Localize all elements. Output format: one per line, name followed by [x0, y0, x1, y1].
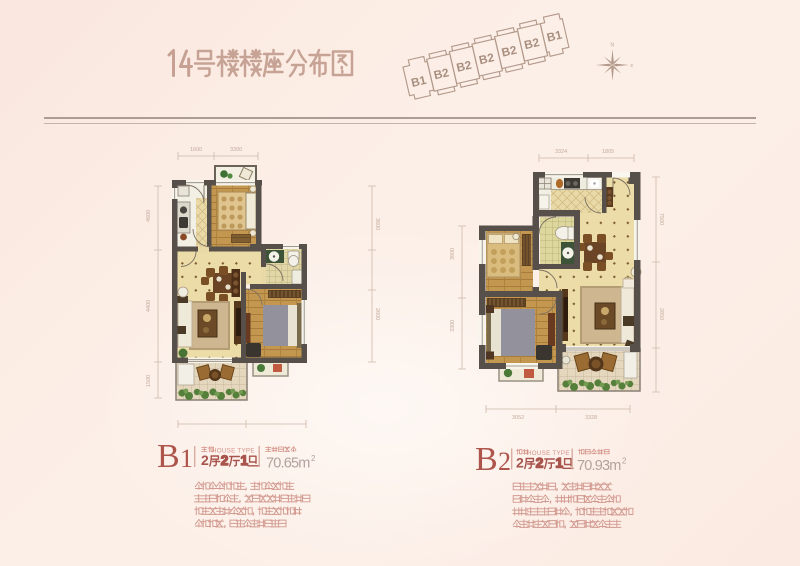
svg-text:HOUSE TYPE: HOUSE TYPE	[212, 447, 255, 454]
svg-text:3300: 3300	[450, 320, 456, 332]
svg-text:2: 2	[622, 457, 627, 466]
svg-text:B1: B1	[545, 27, 563, 44]
svg-text:HOUSE TYPE: HOUSE TYPE	[527, 450, 570, 457]
svg-text:1: 1	[180, 444, 193, 473]
svg-text:1805: 1805	[602, 149, 614, 155]
svg-text:1600: 1600	[190, 147, 202, 153]
svg-text:3600: 3600	[374, 218, 380, 230]
svg-text:E: E	[631, 63, 634, 68]
svg-text:N: N	[611, 43, 615, 49]
svg-text:1: 1	[240, 452, 248, 468]
svg-text:3300: 3300	[230, 147, 242, 153]
svg-text:2: 2	[498, 447, 511, 475]
svg-text:B2: B2	[455, 58, 473, 75]
svg-text:B2: B2	[432, 65, 450, 82]
svg-text:B: B	[475, 441, 498, 475]
svg-text:B2: B2	[478, 50, 496, 67]
svg-text:B: B	[157, 438, 180, 473]
svg-text:7500: 7500	[658, 213, 664, 225]
svg-text:3052: 3052	[512, 415, 524, 421]
svg-text:2: 2	[221, 452, 229, 468]
svg-text:70.65m: 70.65m	[266, 455, 310, 471]
svg-text:3324: 3324	[555, 149, 567, 155]
svg-text:2: 2	[516, 455, 524, 471]
svg-text:B2: B2	[500, 43, 518, 60]
svg-text:B2: B2	[523, 35, 541, 52]
svg-text:4600: 4600	[146, 210, 152, 222]
svg-text:70.93m: 70.93m	[577, 458, 621, 474]
svg-text:B1: B1	[410, 73, 428, 90]
svg-text:2600: 2600	[374, 308, 380, 320]
svg-text:2: 2	[311, 454, 316, 463]
svg-text:2: 2	[201, 452, 209, 468]
svg-text:1500: 1500	[146, 375, 152, 387]
svg-text:2850: 2850	[658, 308, 664, 320]
svg-text:3900: 3900	[450, 248, 456, 260]
svg-text:3328: 3328	[585, 415, 597, 421]
svg-text:1: 1	[555, 455, 563, 471]
svg-text:2: 2	[536, 455, 544, 471]
svg-text:4400: 4400	[146, 300, 152, 312]
